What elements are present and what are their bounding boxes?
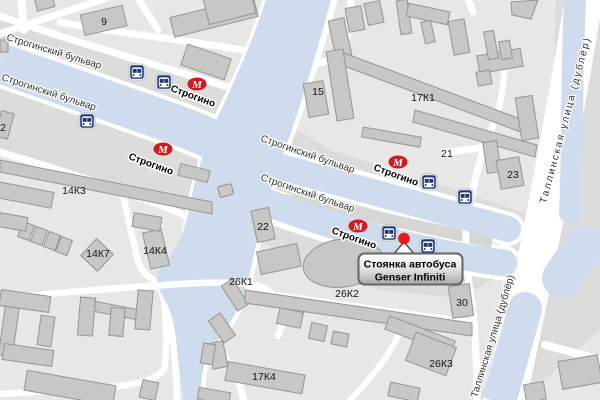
svg-text:17К4: 17К4 [252, 371, 276, 383]
svg-text:М: М [392, 157, 404, 169]
svg-text:26К2: 26К2 [335, 288, 359, 300]
svg-text:22: 22 [257, 221, 269, 233]
svg-text:14К4: 14К4 [143, 245, 167, 257]
svg-text:2: 2 [0, 122, 6, 134]
svg-text:14К7: 14К7 [86, 248, 110, 260]
svg-text:Стоянка автобуса: Стоянка автобуса [364, 259, 457, 271]
svg-text:21: 21 [441, 148, 453, 160]
svg-text:23: 23 [507, 169, 519, 181]
svg-text:Genser Infiniti: Genser Infiniti [375, 272, 446, 284]
svg-text:М: М [352, 221, 364, 233]
svg-text:М: М [157, 144, 169, 156]
svg-text:26К1: 26К1 [229, 276, 253, 288]
svg-text:14К3: 14К3 [62, 185, 86, 197]
svg-text:15: 15 [312, 86, 324, 98]
svg-text:17К1: 17К1 [411, 92, 435, 104]
svg-text:30: 30 [456, 297, 468, 309]
svg-text:М: М [191, 79, 203, 91]
svg-text:9: 9 [101, 16, 107, 28]
svg-text:26К3: 26К3 [429, 358, 453, 370]
